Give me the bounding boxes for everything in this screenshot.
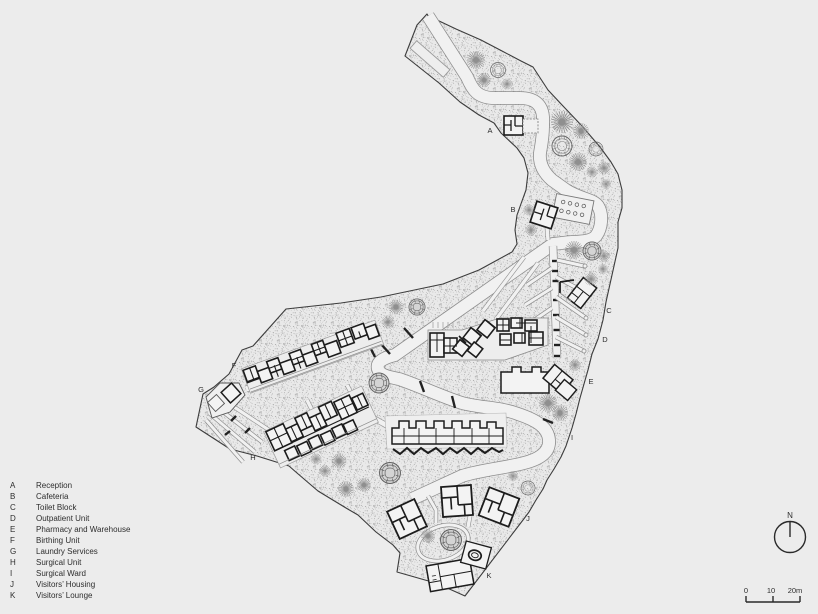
svg-text:20m: 20m [788,586,803,595]
svg-text:Toilet Block: Toilet Block [36,503,77,512]
svg-text:H: H [250,453,255,462]
svg-text:Pharmacy and Warehouse: Pharmacy and Warehouse [36,525,131,534]
svg-text:Reception: Reception [36,481,72,490]
svg-text:E: E [588,377,593,386]
svg-text:E: E [10,525,15,534]
svg-text:K: K [486,571,491,580]
svg-text:D: D [10,514,16,523]
svg-text:Visitors’ Housing: Visitors’ Housing [36,580,95,589]
svg-text:A: A [487,126,492,135]
svg-text:A: A [10,481,16,490]
svg-text:J: J [10,580,14,589]
svg-text:Cafeteria: Cafeteria [36,492,69,501]
svg-text:H: H [10,558,16,567]
svg-text:B: B [10,492,15,501]
svg-text:N: N [787,511,793,520]
svg-text:10: 10 [767,586,775,595]
svg-text:B: B [510,205,515,214]
svg-text:I: I [10,569,12,578]
svg-text:Birthing Unit: Birthing Unit [36,536,80,545]
svg-text:D: D [602,335,608,344]
svg-text:I: I [571,433,573,442]
svg-text:G: G [198,385,204,394]
svg-text:Visitors’ Lounge: Visitors’ Lounge [36,591,93,600]
svg-text:J: J [526,514,530,523]
svg-text:K: K [10,591,16,600]
svg-text:Laundry Services: Laundry Services [36,547,98,556]
svg-text:F: F [10,536,15,545]
svg-text:C: C [606,306,612,315]
svg-text:Surgical Ward: Surgical Ward [36,569,86,578]
svg-text:F: F [232,361,237,370]
svg-text:0: 0 [744,586,748,595]
svg-text:G: G [10,547,16,556]
svg-text:C: C [10,503,16,512]
svg-text:Outpatient Unit: Outpatient Unit [36,514,90,523]
svg-text:Surgical Unit: Surgical Unit [36,558,82,567]
